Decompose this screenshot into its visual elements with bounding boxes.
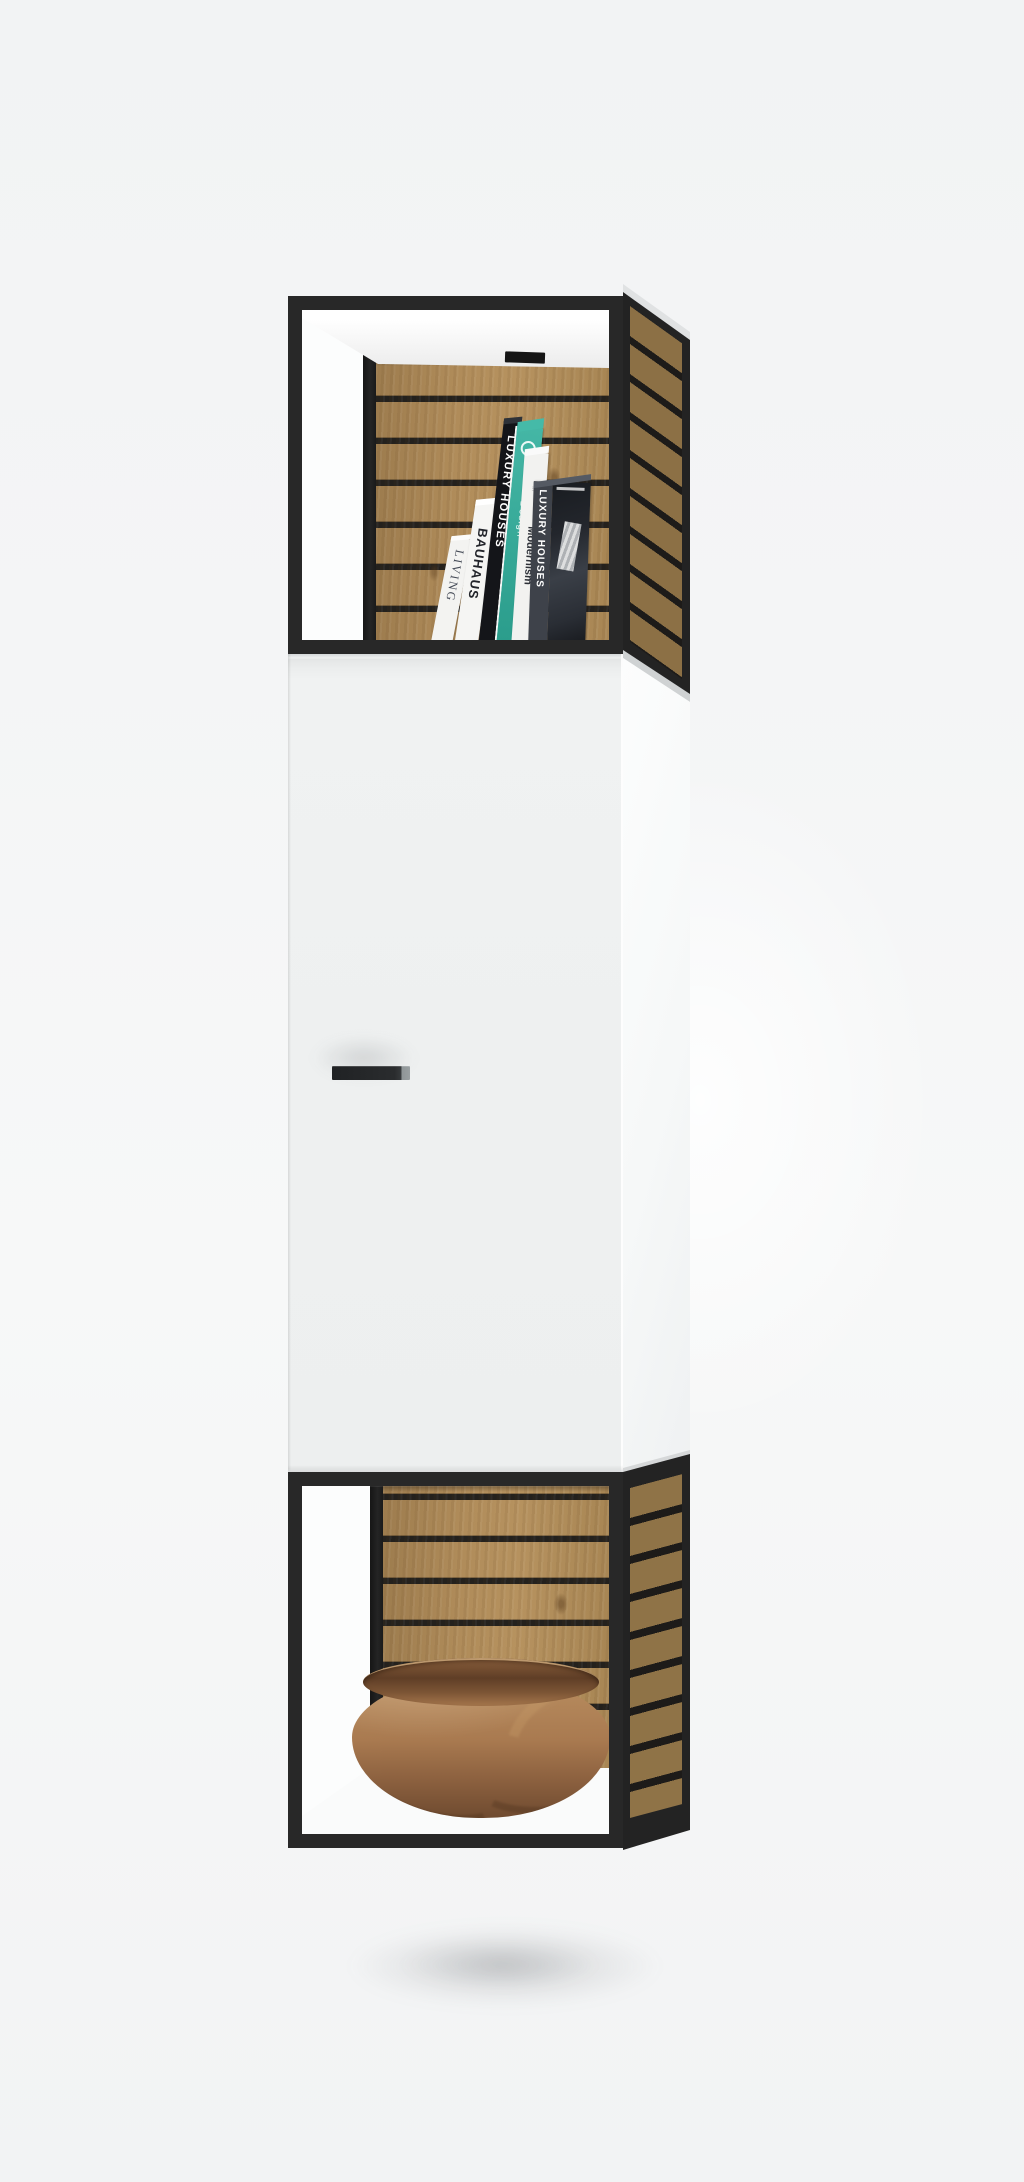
product-photo: LIVING BAUHAUS LUXURY HOUSES Design ||| … xyxy=(0,0,1024,2182)
book-front-cover xyxy=(547,482,591,649)
door-handle xyxy=(332,1066,410,1080)
cabinet-top-edge xyxy=(288,654,623,680)
wooden-bowl xyxy=(352,1658,610,1818)
side-slat-panel xyxy=(630,1474,682,1818)
cabinet-door xyxy=(288,654,623,1472)
book-luxury-houses-gray: LUXURY HOUSES xyxy=(528,481,591,649)
side-panel-frame xyxy=(623,1444,690,1854)
mounting-bracket xyxy=(505,351,545,363)
rear-corner-post xyxy=(363,314,376,642)
cabinet-right-edge xyxy=(621,654,623,1472)
bottom-compartment-side-panel xyxy=(623,1444,690,1854)
side-slat-panel xyxy=(630,306,682,679)
cover-title-bar xyxy=(557,487,585,491)
floor-shadow xyxy=(400,1938,600,1990)
top-compartment-side-panel xyxy=(623,282,690,702)
top-compartment: LIVING BAUHAUS LUXURY HOUSES Design ||| … xyxy=(288,296,623,654)
bowl-opening xyxy=(363,1658,599,1706)
cabinet-bottom-edge xyxy=(288,1465,623,1472)
side-panel-frame xyxy=(623,282,690,702)
cabinet-side-panel xyxy=(623,648,690,1480)
bottom-compartment xyxy=(288,1472,623,1848)
cover-photo-window xyxy=(557,521,582,571)
cabinet-left-edge xyxy=(288,654,291,1472)
